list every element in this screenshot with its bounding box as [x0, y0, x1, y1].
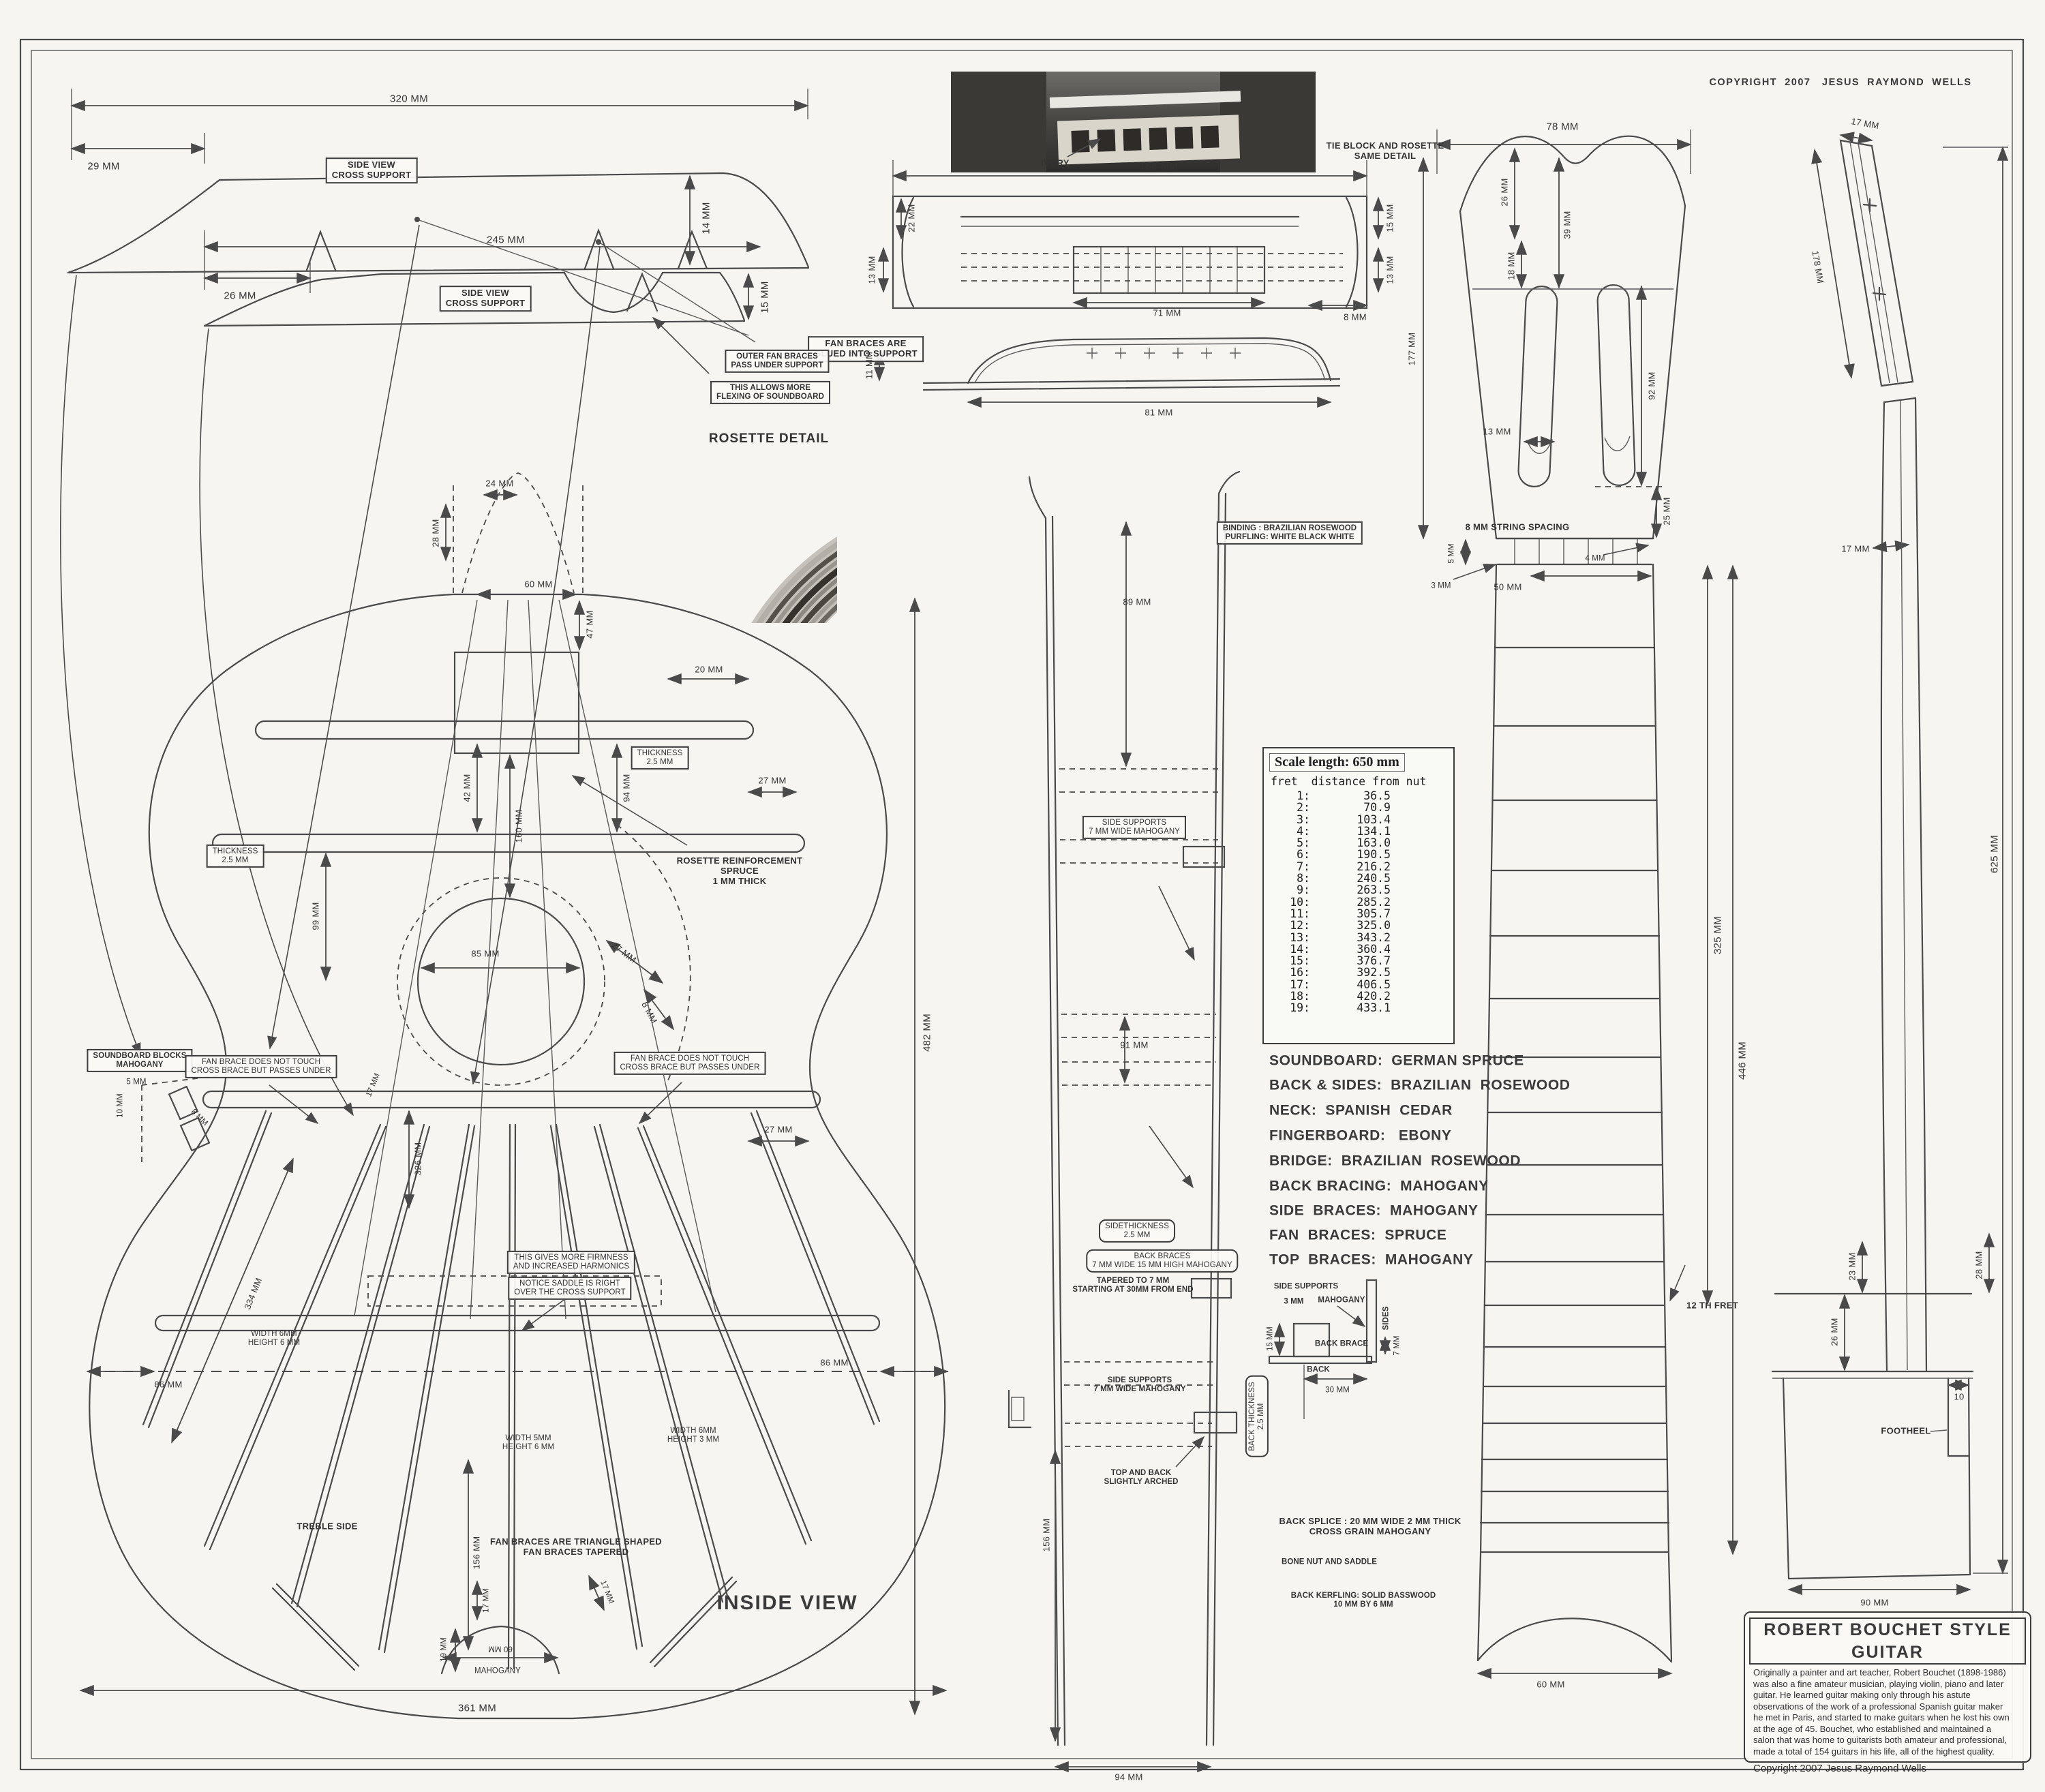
dim-22mm-bridge: 22 MM — [907, 204, 918, 232]
dim-625mm: 625 MM — [1988, 835, 2000, 873]
material-back-sides: BACK & SIDES: BRAZILIAN ROSEWOOD — [1269, 1078, 1571, 1093]
dim-19mm-tail: 19 MM — [440, 1637, 449, 1662]
note-fan-braces-triangle: FAN BRACES ARE TRIANGLE SHAPED FAN BRACE… — [490, 1537, 662, 1558]
title-block: ROBERT BOUCHET STYLE GUITAR Originally a… — [1744, 1611, 2031, 1760]
fret-dist: 392.5 — [1310, 967, 1391, 978]
dim-60mm-block: 60 MM — [524, 580, 552, 590]
dim-13mm-bridge-right: 13 MM — [1386, 256, 1396, 284]
note-arched: TOP AND BACK SLIGHTLY ARCHED — [1104, 1469, 1178, 1487]
fret-num: 8: — [1271, 872, 1310, 884]
fret-num: 10: — [1271, 896, 1310, 908]
fret-num: 19: — [1271, 1002, 1310, 1014]
note-back-kerfling: BACK KERFLING: SOLID BASSWOOD 10 MM BY 6… — [1291, 1592, 1436, 1609]
dim-15mm-back-brace: 15 MM — [1266, 1326, 1275, 1351]
note-side-supports-1: SIDE SUPPORTS 7 MM WIDE MAHOGANY — [1082, 816, 1186, 839]
dim-18mm-crown: 18 MM — [1507, 252, 1517, 279]
dim-26mm-crown: 26 MM — [1500, 178, 1511, 206]
dim-71mm: 71 MM — [1153, 309, 1181, 319]
dim-160mm: 160 MM — [515, 810, 525, 843]
dim-326mm: 326 MM — [414, 1142, 424, 1176]
label-string-spacing: 8 MM STRING SPACING — [1466, 523, 1570, 533]
fret-num: 4: — [1271, 825, 1310, 837]
note-soundboard-blocks: SOUNDBOARD BLOCKS MAHOGANY — [87, 1049, 192, 1072]
fret-num: 12: — [1271, 920, 1310, 931]
dim-15mm-bridge: 15 MM — [1386, 204, 1396, 232]
fret-row: 6:190.5 — [1264, 849, 1453, 860]
note-side-thickness: SIDETHICKNESS 2.5 MM — [1099, 1219, 1175, 1243]
fret-table-header: fret distance from nut — [1271, 775, 1453, 788]
fret-row: 8:240.5 — [1264, 872, 1453, 884]
dim-90mm-heel: 90 MM — [1860, 1598, 1888, 1609]
dim-23mm-heel: 23 MM — [1848, 1252, 1858, 1280]
dim-156mm-strip: 156 MM — [1042, 1519, 1052, 1552]
dim-15mm: 15 MM — [759, 281, 770, 313]
note-tie-block-rosette: TIE BLOCK AND ROSETTE SAME DETAIL — [1327, 141, 1444, 162]
note-saddle-over-cross-support: NOTICE SADDLE IS RIGHT OVER THE CROSS SU… — [508, 1277, 631, 1300]
note-bone-nut-saddle: BONE NUT AND SADDLE — [1282, 1558, 1377, 1566]
material-soundboard: SOUNDBOARD: GERMAN SPRUCE — [1269, 1054, 1524, 1068]
label-footheel: FOOTHEEL — [1881, 1427, 1930, 1437]
note-width-height-2: WIDTH 5MM HEIGHT 6 MM — [502, 1434, 554, 1452]
dim-86mm-left: 86 MM — [154, 1380, 182, 1391]
fret-dist: 406.5 — [1310, 979, 1391, 990]
dim-86mm-right: 86 MM — [820, 1358, 848, 1369]
dim-17mm-nut-side: 17 MM — [1841, 545, 1869, 555]
fret-dist: 134.1 — [1310, 825, 1391, 837]
material-top-braces: TOP BRACES: MAHOGANY — [1269, 1253, 1473, 1267]
fret-dist: 163.0 — [1310, 837, 1391, 849]
copyright-top: COPYRIGHT 2007 JESUS RAYMOND WELLS — [1709, 77, 1971, 88]
note-outer-fan-braces: OUTER FAN BRACES PASS UNDER SUPPORT — [725, 350, 829, 373]
label-back: BACK — [1307, 1365, 1330, 1374]
dim-30mm-back: 30 MM — [1325, 1386, 1350, 1395]
fret-dist: 285.2 — [1310, 896, 1391, 908]
dim-47mm: 47 MM — [586, 610, 596, 638]
fret-dist: 216.2 — [1310, 861, 1391, 872]
fret-row: 18:420.2 — [1264, 990, 1453, 1002]
dim-188mm: 188 MM — [1140, 160, 1178, 172]
label-side-supports-mahogany: MAHOGANY — [1318, 1296, 1365, 1305]
dim-10mm-block: 10 MM — [116, 1093, 125, 1118]
dim-11mm-bridge: 11 MM — [865, 352, 875, 379]
bridge-photo — [951, 72, 1316, 172]
fret-row: 7:216.2 — [1264, 861, 1453, 872]
headstock-front-view — [1423, 130, 1691, 579]
dim-60mm-tail: 60 MM — [488, 1643, 513, 1652]
label-12th-fret: 12 TH FRET — [1686, 1301, 1738, 1311]
scale-length-title: Scale length: 650 mm — [1269, 753, 1405, 772]
dim-94mm: 94 MM — [622, 774, 633, 802]
drawing-description: Originally a painter and art teacher, Ro… — [1753, 1667, 2023, 1757]
note-rosette-reinforcement: ROSETTE REINFORCEMENT SPRUCE 1 MM THICK — [677, 856, 803, 886]
fret-row: 10:285.2 — [1264, 896, 1453, 908]
label-ivory: IVORY — [1041, 159, 1069, 169]
fret-row: 9:263.5 — [1264, 884, 1453, 896]
dim-20mm: 20 MM — [695, 665, 723, 675]
fret-num: 14: — [1271, 943, 1310, 955]
dim-26mm: 26 MM — [224, 290, 256, 301]
dim-156mm-body: 156 MM — [472, 1536, 483, 1570]
label-side-supports-detail: SIDE SUPPORTS — [1274, 1282, 1339, 1291]
note-fan-brace-passes-under-left: FAN BRACE DOES NOT TOUCH CROSS BRACE BUT… — [185, 1055, 337, 1078]
fret-num: 18: — [1271, 990, 1310, 1002]
dim-28mm: 28 MM — [431, 519, 442, 547]
fret-dist: 360.4 — [1310, 943, 1391, 955]
side-development-view — [1009, 472, 1239, 1767]
fret-row: 1:36.5 — [1264, 790, 1453, 802]
body-inside-view — [80, 473, 949, 1718]
note-side-view-cross-support-1: SIDE VIEW CROSS SUPPORT — [326, 157, 418, 183]
dim-5mm-block: 5 MM — [126, 1078, 146, 1087]
dim-99mm: 99 MM — [312, 902, 322, 930]
fret-dist: 325.0 — [1310, 920, 1391, 931]
dim-29mm: 29 MM — [87, 160, 119, 172]
fret-num: 9: — [1271, 884, 1310, 896]
note-back-braces: BACK BRACES 7 MM WIDE 15 MM HIGH MAHOGAN… — [1086, 1249, 1238, 1273]
fret-row: 17:406.5 — [1264, 979, 1453, 990]
dim-320mm: 320 MM — [390, 93, 428, 104]
fret-row: 16:392.5 — [1264, 967, 1453, 978]
dim-60mm-fingerboard-end: 60 MM — [1536, 1680, 1564, 1690]
note-side-view-cross-support-2: SIDE VIEW CROSS SUPPORT — [440, 286, 532, 312]
fret-dist: 376.7 — [1310, 955, 1391, 967]
fret-dist: 240.5 — [1310, 872, 1391, 884]
note-back-splice: BACK SPLICE : 20 MM WIDE 2 MM THICK CROS… — [1279, 1517, 1461, 1537]
label-sides: SIDES — [1382, 1306, 1391, 1330]
dim-89mm: 89 MM — [1123, 598, 1151, 608]
note-width-height-3: WIDTH 6MM HEIGHT 3 MM — [667, 1427, 719, 1444]
dim-7mm-back-brace: 7 MM — [1393, 1335, 1402, 1355]
fret-row: 4:134.1 — [1264, 825, 1453, 837]
label-back-brace: BACK BRACE — [1315, 1339, 1368, 1348]
dim-92mm-slot: 92 MM — [1648, 371, 1658, 399]
material-bridge: BRIDGE: BRAZILIAN ROSEWOOD — [1269, 1154, 1521, 1168]
fret-row: 11:305.7 — [1264, 908, 1453, 920]
dim-39mm-crown: 39 MM — [1563, 211, 1573, 239]
fret-num: 6: — [1271, 849, 1310, 860]
dim-85mm-soundhole: 85 MM — [471, 950, 499, 960]
fret-dist: 103.4 — [1310, 814, 1391, 825]
fret-num: 16: — [1271, 967, 1310, 978]
bridge-drawings — [879, 160, 1378, 402]
drawing-title: ROBERT BOUCHET STYLE GUITAR — [1749, 1618, 2026, 1665]
fret-dist: 36.5 — [1310, 790, 1391, 802]
dim-10-foot: 10 — [1954, 1393, 1964, 1403]
dim-482mm: 482 MM — [921, 1014, 933, 1052]
dim-27mm-lower: 27 MM — [764, 1125, 792, 1136]
note-flexing-soundboard: THIS ALLOWS MORE FLEXING OF SOUNDBOARD — [710, 381, 830, 404]
note-fan-brace-passes-under-right: FAN BRACE DOES NOT TOUCH CROSS BRACE BUT… — [614, 1052, 766, 1075]
note-side-supports-2: SIDE SUPPORTS 7 MM WIDE MAHOGANY — [1093, 1376, 1185, 1394]
dim-3mm-nut: 3 MM — [1431, 581, 1451, 590]
fret-row: 15:376.7 — [1264, 955, 1453, 967]
fret-dist: 343.2 — [1310, 932, 1391, 943]
fret-num: 2: — [1271, 802, 1310, 813]
dim-361mm: 361 MM — [458, 1702, 496, 1714]
dim-78mm: 78 MM — [1546, 121, 1578, 132]
dim-14mm: 14 MM — [700, 202, 712, 234]
dim-13mm-bridge-left: 13 MM — [868, 256, 878, 284]
fret-num: 17: — [1271, 979, 1310, 990]
cross-support-side-views — [61, 89, 808, 1115]
note-binding-purfling: BINDING : BRAZILIAN ROSEWOOD PURFLING: W… — [1217, 521, 1363, 545]
note-back-thickness: BACK THICKNESS 2.5 MM — [1245, 1376, 1269, 1457]
material-back-bracing: BACK BRACING: MAHOGANY — [1269, 1179, 1489, 1194]
fret-num: 13: — [1271, 932, 1310, 943]
dim-81mm: 81 MM — [1145, 408, 1172, 419]
fingerboard-view — [1478, 564, 1733, 1673]
fret-dist: 190.5 — [1310, 849, 1391, 860]
blueprint-sheet: { "sheet": { "copyright_top": "COPYRIGHT… — [0, 0, 2045, 1792]
dim-13mm-slot: 13 MM — [1483, 427, 1511, 438]
note-thickness-right: THICKNESS 2.5 MM — [631, 746, 689, 770]
dim-4mm-nut: 4 MM — [1585, 554, 1605, 563]
fret-row: 19:433.1 — [1264, 1002, 1453, 1014]
material-fan-braces: FAN BRACES: SPRUCE — [1269, 1228, 1447, 1243]
fret-row: 5:163.0 — [1264, 837, 1453, 849]
dim-24mm: 24 MM — [485, 479, 513, 489]
fret-num: 15: — [1271, 955, 1310, 967]
dim-91mm: 91 MM — [1120, 1041, 1148, 1051]
dim-26mm-heel: 26 MM — [1830, 1318, 1840, 1346]
label-rosette-detail: ROSETTE DETAIL — [709, 431, 829, 446]
dim-3mm-side-supports: 3 MM — [1284, 1297, 1303, 1306]
material-side-braces: SIDE BRACES: MAHOGANY — [1269, 1204, 1479, 1218]
fret-dist: 305.7 — [1310, 908, 1391, 920]
fret-num: 11: — [1271, 908, 1310, 920]
dim-325mm: 325 MM — [1712, 916, 1723, 954]
fret-dist: 263.5 — [1310, 884, 1391, 896]
dim-42mm: 42 MM — [463, 774, 473, 802]
fret-row: 14:360.4 — [1264, 943, 1453, 955]
dim-28mm-heel: 28 MM — [1975, 1251, 1985, 1279]
neck-side-profile — [1772, 135, 2008, 1590]
label-tail-mahogany: MAHOGANY — [474, 1667, 521, 1675]
dim-8mm-bridge: 8 MM — [1344, 313, 1367, 323]
dim-245mm: 245 MM — [487, 234, 525, 245]
dim-94mm-strip: 94 MM — [1115, 1773, 1142, 1783]
label-treble-side: TREBLE SIDE — [297, 1522, 357, 1532]
fret-row: 3:103.4 — [1264, 814, 1453, 825]
fret-num: 5: — [1271, 837, 1310, 849]
dim-50mm-nut: 50 MM — [1494, 583, 1521, 593]
dim-446mm: 446 MM — [1736, 1042, 1748, 1080]
dim-27mm-upper: 27 MM — [758, 776, 786, 787]
dim-177mm: 177 MM — [1408, 333, 1418, 366]
title-block-frame: ROBERT BOUCHET STYLE GUITAR Originally a… — [1744, 1611, 2031, 1763]
fret-num: 7: — [1271, 861, 1310, 872]
fret-num: 3: — [1271, 814, 1310, 825]
note-width-height-1: WIDTH 6MM HEIGHT 6 MM — [248, 1330, 300, 1348]
fret-distance-table: Scale length: 650 mm fret distance from … — [1262, 747, 1455, 1044]
fret-dist: 70.9 — [1310, 802, 1391, 813]
label-inside-view: INSIDE VIEW — [716, 1592, 858, 1615]
fret-row: 12:325.0 — [1264, 920, 1453, 931]
material-fingerboard: FINGERBOARD: EBONY — [1269, 1129, 1452, 1143]
dim-5mm-nut: 5 MM — [1447, 543, 1456, 563]
dim-25mm-headstock: 25 MM — [1663, 497, 1673, 525]
note-thickness-left: THICKNESS 2.5 MM — [207, 845, 264, 868]
note-firmness-harmonics: THIS GIVES MORE FIRMNESS AND INCREASED H… — [507, 1251, 635, 1274]
fret-row: 2:70.9 — [1264, 802, 1453, 813]
fret-dist: 420.2 — [1310, 990, 1391, 1002]
material-neck: NECK: SPANISH CEDAR — [1269, 1104, 1453, 1118]
copyright-bottom: Copyright 2007 Jesus Raymond Wells — [1753, 1763, 2030, 1774]
dim-17mm-fan-left: 17 MM — [482, 1588, 491, 1613]
fret-row: 13:343.2 — [1264, 932, 1453, 943]
fret-dist: 433.1 — [1310, 1002, 1391, 1014]
fret-num: 1: — [1271, 790, 1310, 802]
note-tapered-7mm: TAPERED TO 7 MM STARTING AT 30MM FROM EN… — [1072, 1277, 1193, 1294]
